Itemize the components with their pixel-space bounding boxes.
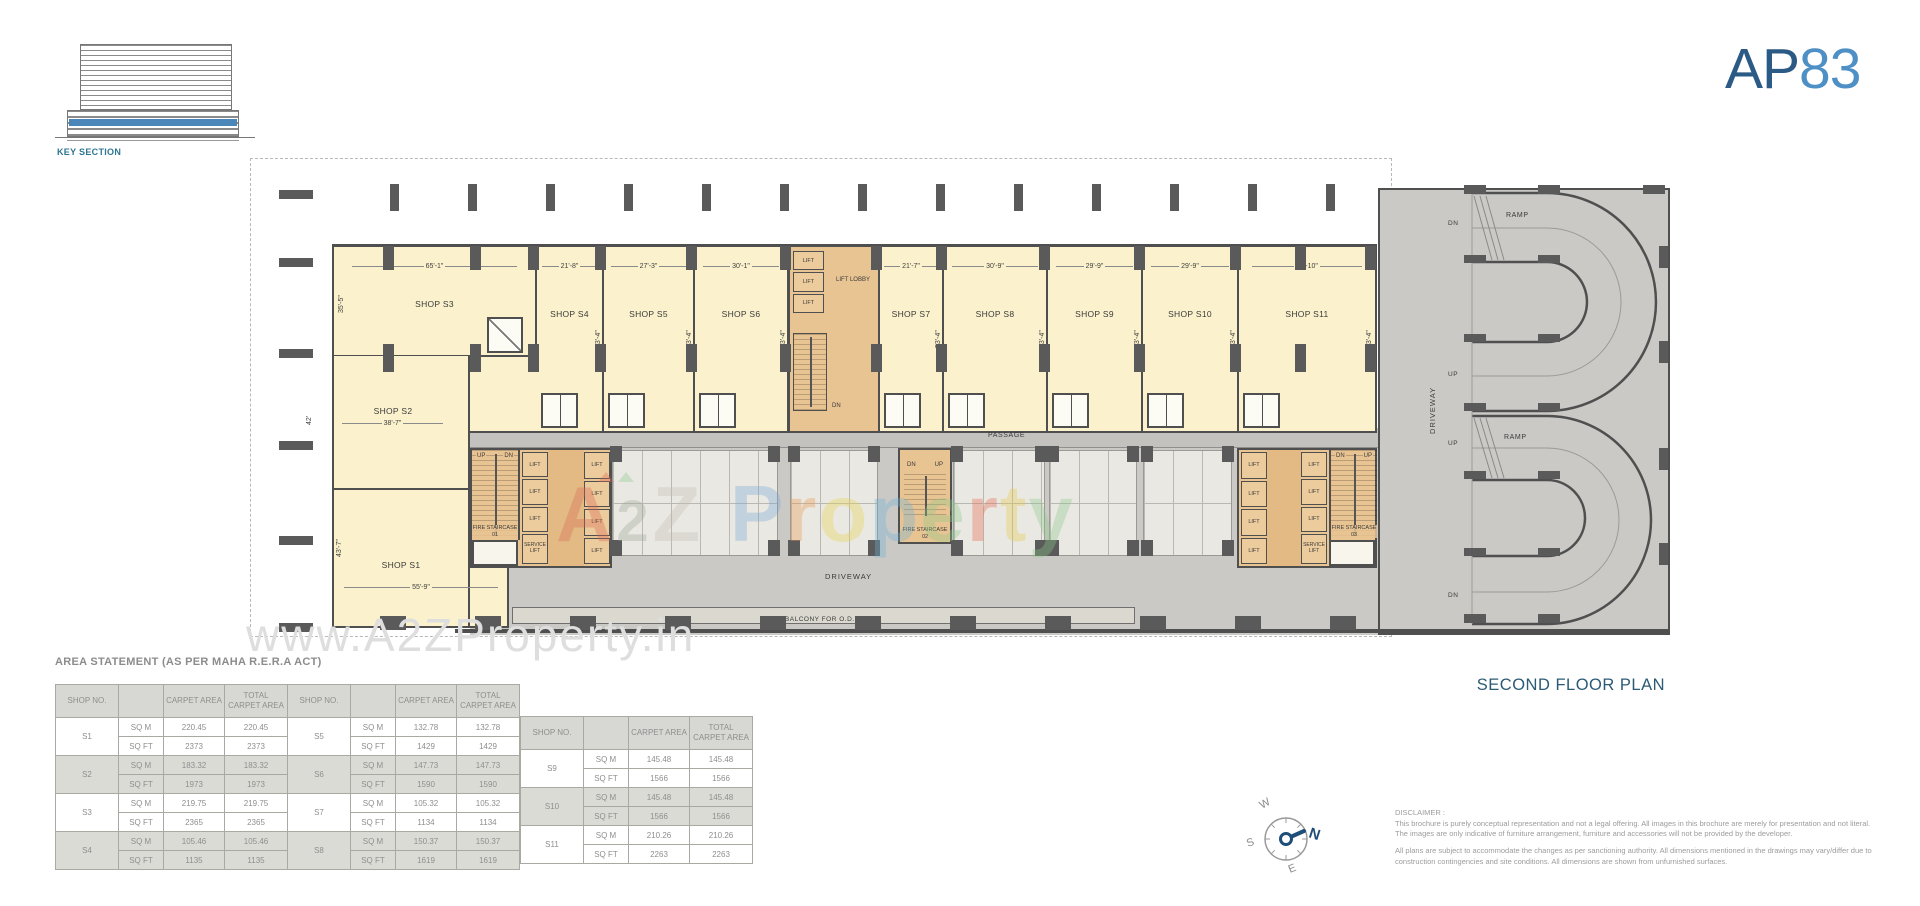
stair-rail [495, 454, 497, 537]
fs1-dn-label: DN [503, 453, 514, 459]
shop-s11-label: SHOP S11 [1239, 309, 1375, 319]
table-header-row: SHOP NO. CARPET AREA TOTAL CARPET AREA [56, 685, 288, 718]
cell-carpet: 132.78 [396, 718, 457, 737]
fire-staircase-3: DN UP FIRE STAIRCASE 03 [1329, 450, 1377, 540]
lift-box: LIFT [1301, 507, 1327, 532]
shop-s9-label: SHOP S9 [1048, 309, 1141, 319]
core-east-lift-col-b: LIFT LIFT LIFT SERVICE LIFT [1301, 452, 1327, 564]
cell-unit: SQ M [584, 788, 629, 807]
shop-s2-label: SHOP S2 [334, 406, 452, 416]
cell-carpet: 2373 [164, 737, 225, 756]
table-row: S4 SQ M 105.46 105.46 [56, 832, 288, 851]
table-row: S2 SQ M 183.32 183.32 [56, 756, 288, 775]
lift-box: LIFT [1241, 481, 1267, 508]
cell-unit: SQ M [351, 832, 396, 851]
col-header-shop: SHOP NO. [288, 685, 351, 718]
wm-letter: y [1028, 469, 1075, 558]
cell-carpet: 1566 [629, 769, 690, 788]
cell-unit: SQ M [584, 750, 629, 769]
core-west-lift-col-a: LIFT LIFT LIFT SERVICE LIFT [522, 452, 548, 564]
shop-s6-depth-dim: 53'-4" [780, 289, 787, 389]
cell-shop-no: S3 [56, 794, 119, 832]
cell-unit: SQ M [119, 794, 164, 813]
wm-letter: P [730, 469, 785, 558]
shaft-box [487, 317, 523, 353]
cell-carpet: 150.37 [396, 832, 457, 851]
cell-shop-no: S7 [288, 794, 351, 832]
col-header-carpet: CARPET AREA [164, 685, 225, 718]
col-header-total: TOTAL CARPET AREA [457, 685, 520, 718]
shop-s1-label: SHOP S1 [334, 560, 468, 570]
table-row: S10 SQ M 145.48 145.48 [521, 788, 753, 807]
wm-letter: r [967, 469, 1000, 558]
stair-rail [810, 337, 812, 407]
cell-carpet: 210.26 [629, 826, 690, 845]
cell-carpet: 2263 [629, 845, 690, 864]
shop-s10-toilet [1147, 393, 1184, 428]
cell-unit: SQ FT [119, 775, 164, 794]
shop-s3-label: SHOP S3 [334, 299, 535, 309]
shop-s9-width-dim: 29'-9" [1054, 263, 1136, 270]
wm-letter: t [1000, 469, 1029, 558]
cell-unit: SQ M [119, 718, 164, 737]
shop-s3-depth-dim: 35'-5" [338, 258, 345, 350]
ramp-drawing [1380, 190, 1667, 632]
driveway-right-label: DRIVEWAY [1428, 365, 1437, 455]
cell-total: 183.32 [225, 756, 288, 775]
area-table-1: SHOP NO. CARPET AREA TOTAL CARPET AREA S… [55, 684, 288, 870]
cell-shop-no: S9 [521, 750, 584, 788]
table-row: S3 SQ M 219.75 219.75 [56, 794, 288, 813]
watermark-center: A2Z Property [556, 468, 1075, 560]
service-lift-box: SERVICE LIFT [1301, 534, 1327, 564]
col-header-shop: SHOP NO. [56, 685, 119, 718]
ramp1-label: RAMP [1506, 212, 1529, 219]
lift-lobby-label: LIFT LOBBY [830, 277, 876, 285]
area-table-3: SHOP NO. CARPET AREA TOTAL CARPET AREA S… [520, 716, 753, 864]
disclaimer-paragraph-2: All plans are subject to accommodate the… [1395, 846, 1877, 866]
cell-unit: SQ FT [584, 769, 629, 788]
compass-east-label: E [1287, 862, 1298, 876]
lobby-dn-label: DN [832, 403, 841, 409]
lift-box: LIFT [522, 479, 548, 504]
lift-box: LIFT [1301, 479, 1327, 504]
table-row: S9 SQ M 145.48 145.48 [521, 750, 753, 769]
fs1-up-label: UP [476, 453, 486, 459]
cell-shop-no: S1 [56, 718, 119, 756]
shop-s1-depth-dim: 43'-7" [336, 502, 343, 594]
shop-s9: 29'-9" SHOP S9 53'-4" [1048, 247, 1143, 431]
lift-box: LIFT [793, 251, 824, 270]
lift-box: LIFT [1301, 452, 1327, 477]
cell-shop-no: S10 [521, 788, 584, 826]
compass-west-label: W [1258, 796, 1274, 812]
fs3-up-label: UP [1363, 453, 1373, 459]
cell-total: 1619 [457, 851, 520, 870]
ramp2-label: RAMP [1504, 434, 1527, 441]
col-header-total: TOTAL CARPET AREA [690, 717, 753, 750]
col-header-carpet: CARPET AREA [629, 717, 690, 750]
cell-carpet: 1429 [396, 737, 457, 756]
stair-rail [1354, 454, 1356, 537]
compass-south-label: S [1246, 836, 1256, 850]
shop-s9-toilet [1052, 393, 1089, 428]
shop-s6: 30'-1" SHOP S6 53'-4" [695, 247, 789, 431]
cell-unit: SQ FT [351, 813, 396, 832]
shop-s10-label: SHOP S10 [1143, 309, 1237, 319]
shop-strip: 65'-1" SHOP S3 21'-8" SHOP S4 53'-4" 27'… [332, 244, 1377, 433]
cell-total: 1973 [225, 775, 288, 794]
cell-total: 2365 [225, 813, 288, 832]
cell-total: 105.32 [457, 794, 520, 813]
cell-shop-no: S11 [521, 826, 584, 864]
table-row: S5 SQ M 132.78 132.78 [288, 718, 520, 737]
table-row: S1 SQ M 220.45 220.45 [56, 718, 288, 737]
utility-room [1329, 540, 1375, 566]
shop-s6-toilet [699, 393, 736, 428]
cell-carpet: 105.46 [164, 832, 225, 851]
shop-s5-label: SHOP S5 [604, 309, 693, 319]
table-row: S8 SQ M 150.37 150.37 [288, 832, 520, 851]
watermark-bottom: www.A2ZProperty.in [246, 608, 695, 662]
house-icon [618, 472, 634, 482]
cell-unit: SQ M [351, 756, 396, 775]
lift-box: LIFT [793, 272, 824, 291]
fs3-dn-label: DN [1335, 453, 1346, 459]
shop-s11-toilet [1243, 393, 1280, 428]
wm-letter: o [818, 469, 869, 558]
col-header-carpet: CARPET AREA [396, 685, 457, 718]
cell-shop-no: S8 [288, 832, 351, 870]
core-east-corridor [1267, 450, 1301, 566]
shop-s3: 65'-1" SHOP S3 [334, 247, 537, 357]
col-header-total: TOTAL CARPET AREA [225, 685, 288, 718]
table-header-row: SHOP NO. CARPET AREA TOTAL CARPET AREA [521, 717, 753, 750]
cell-total: 147.73 [457, 756, 520, 775]
lift-box: LIFT [522, 452, 548, 477]
col-header-unit [119, 685, 164, 718]
shop-s7: 21'-7" SHOP S7 53'-4" [880, 247, 944, 431]
cell-unit: SQ M [584, 826, 629, 845]
cell-unit: SQ M [119, 832, 164, 851]
wm-letter: p [869, 469, 920, 558]
shop-s7-depth-dim: 53'-4" [935, 289, 942, 389]
lift-lobby-lifts: LIFT LIFT LIFT [793, 251, 824, 313]
wm-letter: Z [653, 470, 705, 558]
wm-letter: 2 [616, 489, 652, 554]
shop-s7-toilet [884, 393, 921, 428]
compass-north-label: N [1307, 825, 1323, 845]
shop-s11: 42'-10" SHOP S11 53'-4" [1239, 247, 1375, 431]
ramp1-dn-label: DN [1448, 220, 1459, 227]
col-header-shop: SHOP NO. [521, 717, 584, 750]
cell-carpet: 220.45 [164, 718, 225, 737]
cell-unit: SQ FT [584, 807, 629, 826]
core-east: LIFT LIFT LIFT LIFT LIFT LIFT LIFT SERVI… [1237, 448, 1377, 568]
lobby-stair [793, 333, 827, 411]
fs1-label: FIRE STAIRCASE 01 [472, 525, 518, 538]
lift-box: LIFT [793, 294, 824, 313]
cell-total: 150.37 [457, 832, 520, 851]
shop-s4-label: SHOP S4 [537, 309, 602, 319]
shop-s4: 21'-8" SHOP S4 53'-4" [537, 247, 604, 431]
cell-total: 1566 [690, 769, 753, 788]
shop-s11-depth-dim: 53'-4" [1366, 289, 1373, 389]
lift-box: LIFT [1241, 452, 1267, 479]
cell-carpet: 2365 [164, 813, 225, 832]
shop-s8-toilet [948, 393, 985, 428]
shop-s8-width-dim: 30'-9" [950, 263, 1040, 270]
shop-s1-width-dim: 55'-9" [342, 584, 500, 591]
table-row: S6 SQ M 147.73 147.73 [288, 756, 520, 775]
fire-staircase-1: UP DN FIRE STAIRCASE 01 [472, 450, 520, 540]
cell-unit: SQ M [351, 718, 396, 737]
cell-carpet: 1135 [164, 851, 225, 870]
shop-s3-width-dim: 65'-1" [350, 263, 519, 270]
shop-s8-depth-dim: 53'-4" [1039, 289, 1046, 389]
passage-label: PASSAGE [988, 432, 1025, 439]
cell-shop-no: S6 [288, 756, 351, 794]
cell-total: 2263 [690, 845, 753, 864]
service-lift-box: SERVICE LIFT [522, 534, 548, 564]
lift-lobby: LIFT LIFT LIFT LIFT LOBBY DN [789, 247, 880, 431]
disclaimer-paragraph-1: This brochure is purely conceptual repre… [1395, 819, 1877, 839]
utility-room [472, 540, 518, 566]
shop-s4-width-dim: 21'-8" [540, 263, 600, 270]
shop-s6-label: SHOP S6 [695, 309, 787, 319]
cell-total: 219.75 [225, 794, 288, 813]
shop-s7-width-dim: 21'-7" [882, 263, 939, 270]
shop-s9-depth-dim: 53'-4" [1134, 289, 1141, 389]
cell-unit: SQ FT [351, 775, 396, 794]
compass: N W S E [1246, 793, 1330, 883]
disclaimer: DISCLAIMER : This brochure is purely con… [1395, 808, 1877, 867]
cell-unit: SQ FT [119, 813, 164, 832]
cell-shop-no: S2 [56, 756, 119, 794]
cell-carpet: 145.48 [629, 750, 690, 769]
cell-carpet: 1566 [629, 807, 690, 826]
wm-letter: r [785, 469, 818, 558]
shop-s8: 30'-9" SHOP S8 53'-4" [944, 247, 1048, 431]
balcony-label: BALCONY FOR O.D.U. [785, 616, 862, 623]
table-row: S7 SQ M 105.32 105.32 [288, 794, 520, 813]
shop-s5-depth-dim: 53'-4" [686, 289, 693, 389]
shop-s4-toilet [541, 393, 578, 428]
cell-unit: SQ FT [351, 737, 396, 756]
lift-box: LIFT [1241, 509, 1267, 536]
shop-s5-toilet [608, 393, 645, 428]
disclaimer-title: DISCLAIMER : [1395, 808, 1877, 818]
cell-unit: SQ M [119, 756, 164, 775]
cell-shop-no: S4 [56, 832, 119, 870]
core-east-lift-col-a: LIFT LIFT LIFT LIFT [1241, 452, 1267, 564]
cell-carpet: 1973 [164, 775, 225, 794]
col-header-unit [351, 685, 396, 718]
shop-s11-width-dim: 42'-10" [1250, 263, 1364, 270]
shop-s8-label: SHOP S8 [944, 309, 1046, 319]
col-header-unit [584, 717, 629, 750]
wm-letter: A [556, 470, 616, 558]
shop-s10-width-dim: 29'-9" [1149, 263, 1232, 270]
area-table-2: SHOP NO. CARPET AREA TOTAL CARPET AREA S… [287, 684, 520, 870]
shop-s10-depth-dim: 53'-4" [1230, 289, 1237, 389]
cell-carpet: 1590 [396, 775, 457, 794]
brochure-page: KEY SECTION AP83 DRIVEWAY DN RAMP [0, 0, 1920, 906]
cell-carpet: 1619 [396, 851, 457, 870]
cell-total: 210.26 [690, 826, 753, 845]
cell-unit: SQ FT [119, 737, 164, 756]
cell-total: 1134 [457, 813, 520, 832]
cell-total: 1135 [225, 851, 288, 870]
shop-s2-width-dim: 38'-7" [340, 420, 445, 427]
cell-carpet: 219.75 [164, 794, 225, 813]
cell-unit: SQ FT [119, 851, 164, 870]
cell-shop-no: S5 [288, 718, 351, 756]
ramp2-up-label: UP [1448, 440, 1458, 447]
ramp2-dn-label: DN [1448, 592, 1459, 599]
shop-s6-width-dim: 30'-1" [701, 263, 782, 270]
lift-box: LIFT [1241, 538, 1267, 565]
cell-carpet: 183.32 [164, 756, 225, 775]
shop-s2-depth-dim: 42' [306, 382, 313, 458]
cell-carpet: 1134 [396, 813, 457, 832]
cell-total: 105.46 [225, 832, 288, 851]
house-icon [598, 472, 614, 482]
ramp-section: DRIVEWAY [1378, 188, 1670, 635]
cell-total: 145.48 [690, 750, 753, 769]
shop-s5: 27'-3" SHOP S5 53'-4" [604, 247, 695, 431]
table-header-row: SHOP NO. CARPET AREA TOTAL CARPET AREA [288, 685, 520, 718]
fs3-label: FIRE STAIRCASE 03 [1331, 525, 1377, 538]
cell-total: 1566 [690, 807, 753, 826]
shop-s7-label: SHOP S7 [880, 309, 942, 319]
cell-total: 145.48 [690, 788, 753, 807]
cell-total: 1590 [457, 775, 520, 794]
cell-unit: SQ M [351, 794, 396, 813]
cell-total: 132.78 [457, 718, 520, 737]
ramp1-up-label: UP [1448, 371, 1458, 378]
cell-carpet: 147.73 [396, 756, 457, 775]
s1-s2-wall [334, 488, 472, 490]
wm-letter: e [920, 469, 967, 558]
cell-carpet: 105.32 [396, 794, 457, 813]
shop-s5-width-dim: 27'-3" [609, 263, 687, 270]
page-title: SECOND FLOOR PLAN [1380, 676, 1665, 695]
cell-carpet: 145.48 [629, 788, 690, 807]
lift-box: LIFT [522, 507, 548, 532]
driveway-center-label: DRIVEWAY [825, 572, 872, 581]
shop-s10: 29'-9" SHOP S10 53'-4" [1143, 247, 1239, 431]
cell-total: 1429 [457, 737, 520, 756]
cell-unit: SQ FT [351, 851, 396, 870]
cell-total: 220.45 [225, 718, 288, 737]
cell-unit: SQ FT [584, 845, 629, 864]
cell-total: 2373 [225, 737, 288, 756]
table-row: S11 SQ M 210.26 210.26 [521, 826, 753, 845]
shop-s4-depth-dim: 53'-4" [595, 289, 602, 389]
